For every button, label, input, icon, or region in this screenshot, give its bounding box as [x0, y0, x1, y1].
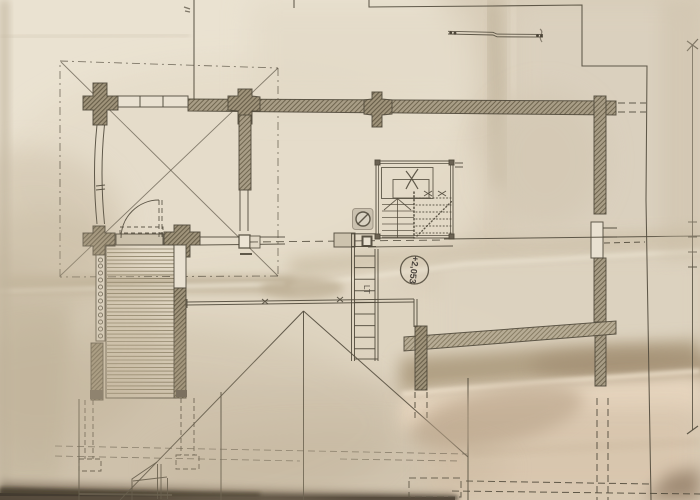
svg-text:LT: LT	[362, 285, 371, 294]
